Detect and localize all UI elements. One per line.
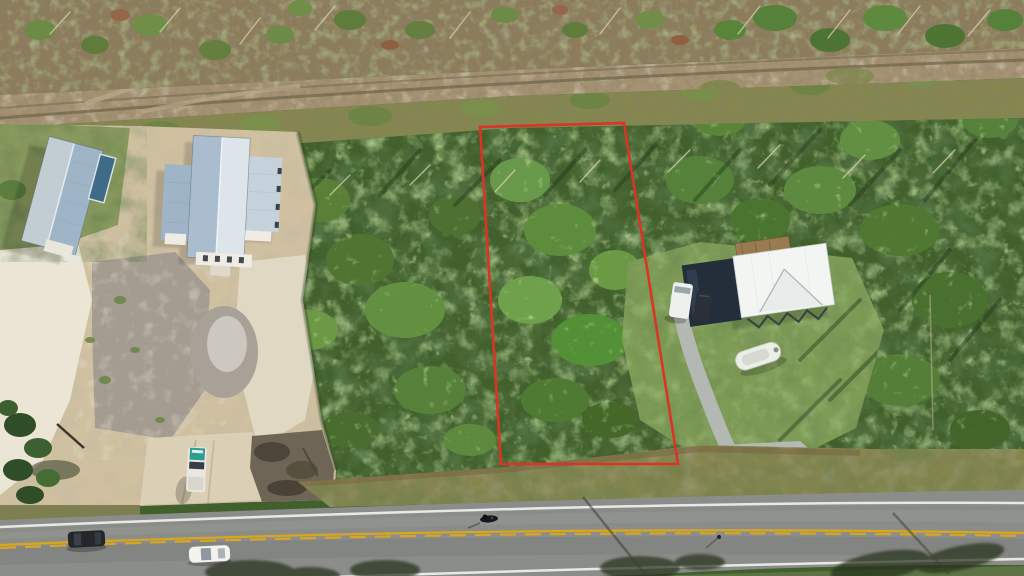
aerial-photo xyxy=(0,0,1024,576)
aerial-photo-stage xyxy=(0,0,1024,576)
right-wing-roof xyxy=(245,156,282,232)
white-car xyxy=(187,545,232,567)
dark-suv xyxy=(66,530,107,553)
